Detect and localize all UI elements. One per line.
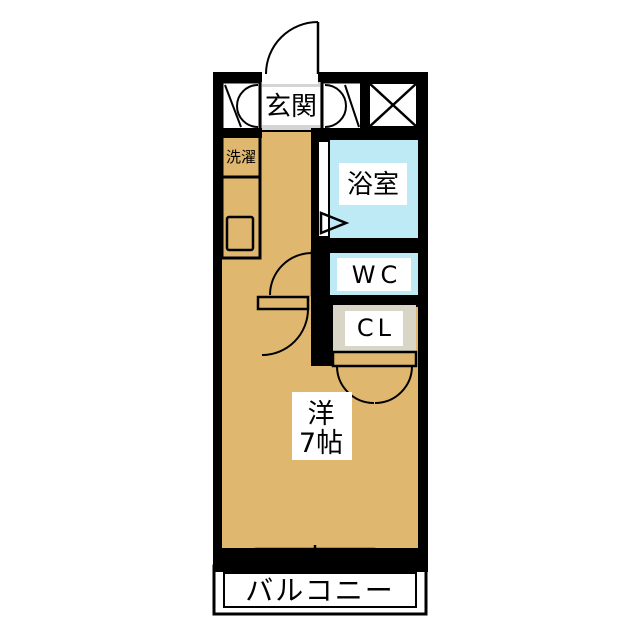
laundry-label: 洗濯 [226,148,256,166]
bathroom-label: 浴室 [347,170,399,200]
wall-segment [330,238,418,253]
closet-label: CL [357,314,395,342]
floor-plan: 玄関 洗濯 浴室 [0,0,640,640]
toilet: WC [330,253,418,295]
living-room: 洋 7帖 [292,392,352,460]
balcony: バルコニー [214,566,426,614]
floor-plan-page: 玄関 洗濯 浴室 [0,0,640,640]
living-room-label-line2: 7帖 [299,428,343,459]
wall-segment [213,548,428,566]
living-room-label-line1: 洋 [308,399,335,430]
balcony-label: バルコニー [245,574,394,607]
door-threshold [262,72,318,84]
wall-segment [311,307,333,366]
entrance-area: 玄関 [260,82,322,132]
entrance-label: 玄関 [265,92,317,122]
bathroom: 浴室 [319,140,418,238]
toilet-label: WC [352,261,403,289]
